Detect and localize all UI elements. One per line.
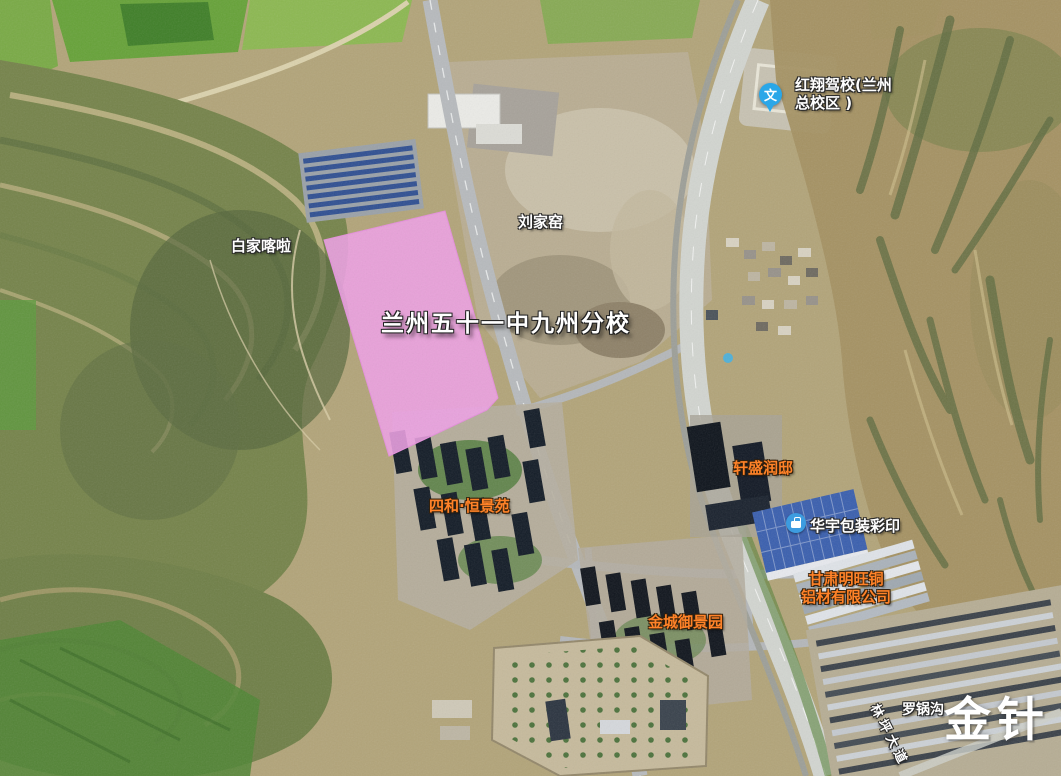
label-sihe-hengjingyuan[interactable]: 四和·恒景苑 <box>429 497 510 515</box>
label-xuansheng-rundi[interactable]: 轩盛润邸 <box>733 459 793 477</box>
label-luoguogou: 罗锅沟 <box>902 702 944 719</box>
map-labels-layer: 红翔驾校(兰州总校区 )文刘家窑白家喀啦兰州五十一中九州分校轩盛润邸四和·恒景苑… <box>0 0 1061 776</box>
label-xuansheng-rundi-text: 轩盛润邸 <box>733 459 793 477</box>
label-school-site-text: 兰州五十一中九州分校 <box>381 310 631 338</box>
education-pin-icon[interactable]: 文 <box>759 83 783 115</box>
label-gansu-mingwang-text: 甘肃明旺铜 <box>800 570 892 588</box>
label-school-site: 兰州五十一中九州分校 <box>381 310 631 338</box>
label-hongxiang-driving-school-text: 红翔驾校(兰州 <box>795 76 892 94</box>
education-pin-icon-glyph: 文 <box>759 83 782 106</box>
watermark-jinzhen: 金针 <box>944 692 1050 749</box>
map-viewport[interactable]: 红翔驾校(兰州总校区 )文刘家窑白家喀啦兰州五十一中九州分校轩盛润邸四和·恒景苑… <box>0 0 1061 776</box>
label-baijiakela: 白家喀啦 <box>231 237 291 255</box>
label-liujiayao: 刘家窑 <box>518 213 563 231</box>
label-luoguogou-text: 罗锅沟 <box>902 702 944 719</box>
label-liujiayao-text: 刘家窑 <box>518 213 563 231</box>
label-hongxiang-driving-school-text: 总校区 ) <box>795 94 892 112</box>
label-hongxiang-driving-school[interactable]: 红翔驾校(兰州总校区 ) <box>795 76 892 113</box>
label-gansu-mingwang[interactable]: 甘肃明旺铜铝材有限公司 <box>800 570 892 607</box>
label-sihe-hengjingyuan-text: 四和·恒景苑 <box>429 497 510 515</box>
watermark-jinzhen-text: 金针 <box>944 692 1050 749</box>
company-icon[interactable] <box>786 513 806 533</box>
label-huayu-packaging[interactable]: 华宇包装彩印 <box>810 517 900 535</box>
label-jincheng-yujingyuan-text: 金城御景园 <box>648 613 723 631</box>
label-baijiakela-text: 白家喀啦 <box>231 237 291 255</box>
label-huayu-packaging-text: 华宇包装彩印 <box>810 517 900 535</box>
label-jincheng-yujingyuan[interactable]: 金城御景园 <box>648 613 723 631</box>
label-gansu-mingwang-text: 铝材有限公司 <box>800 588 892 606</box>
